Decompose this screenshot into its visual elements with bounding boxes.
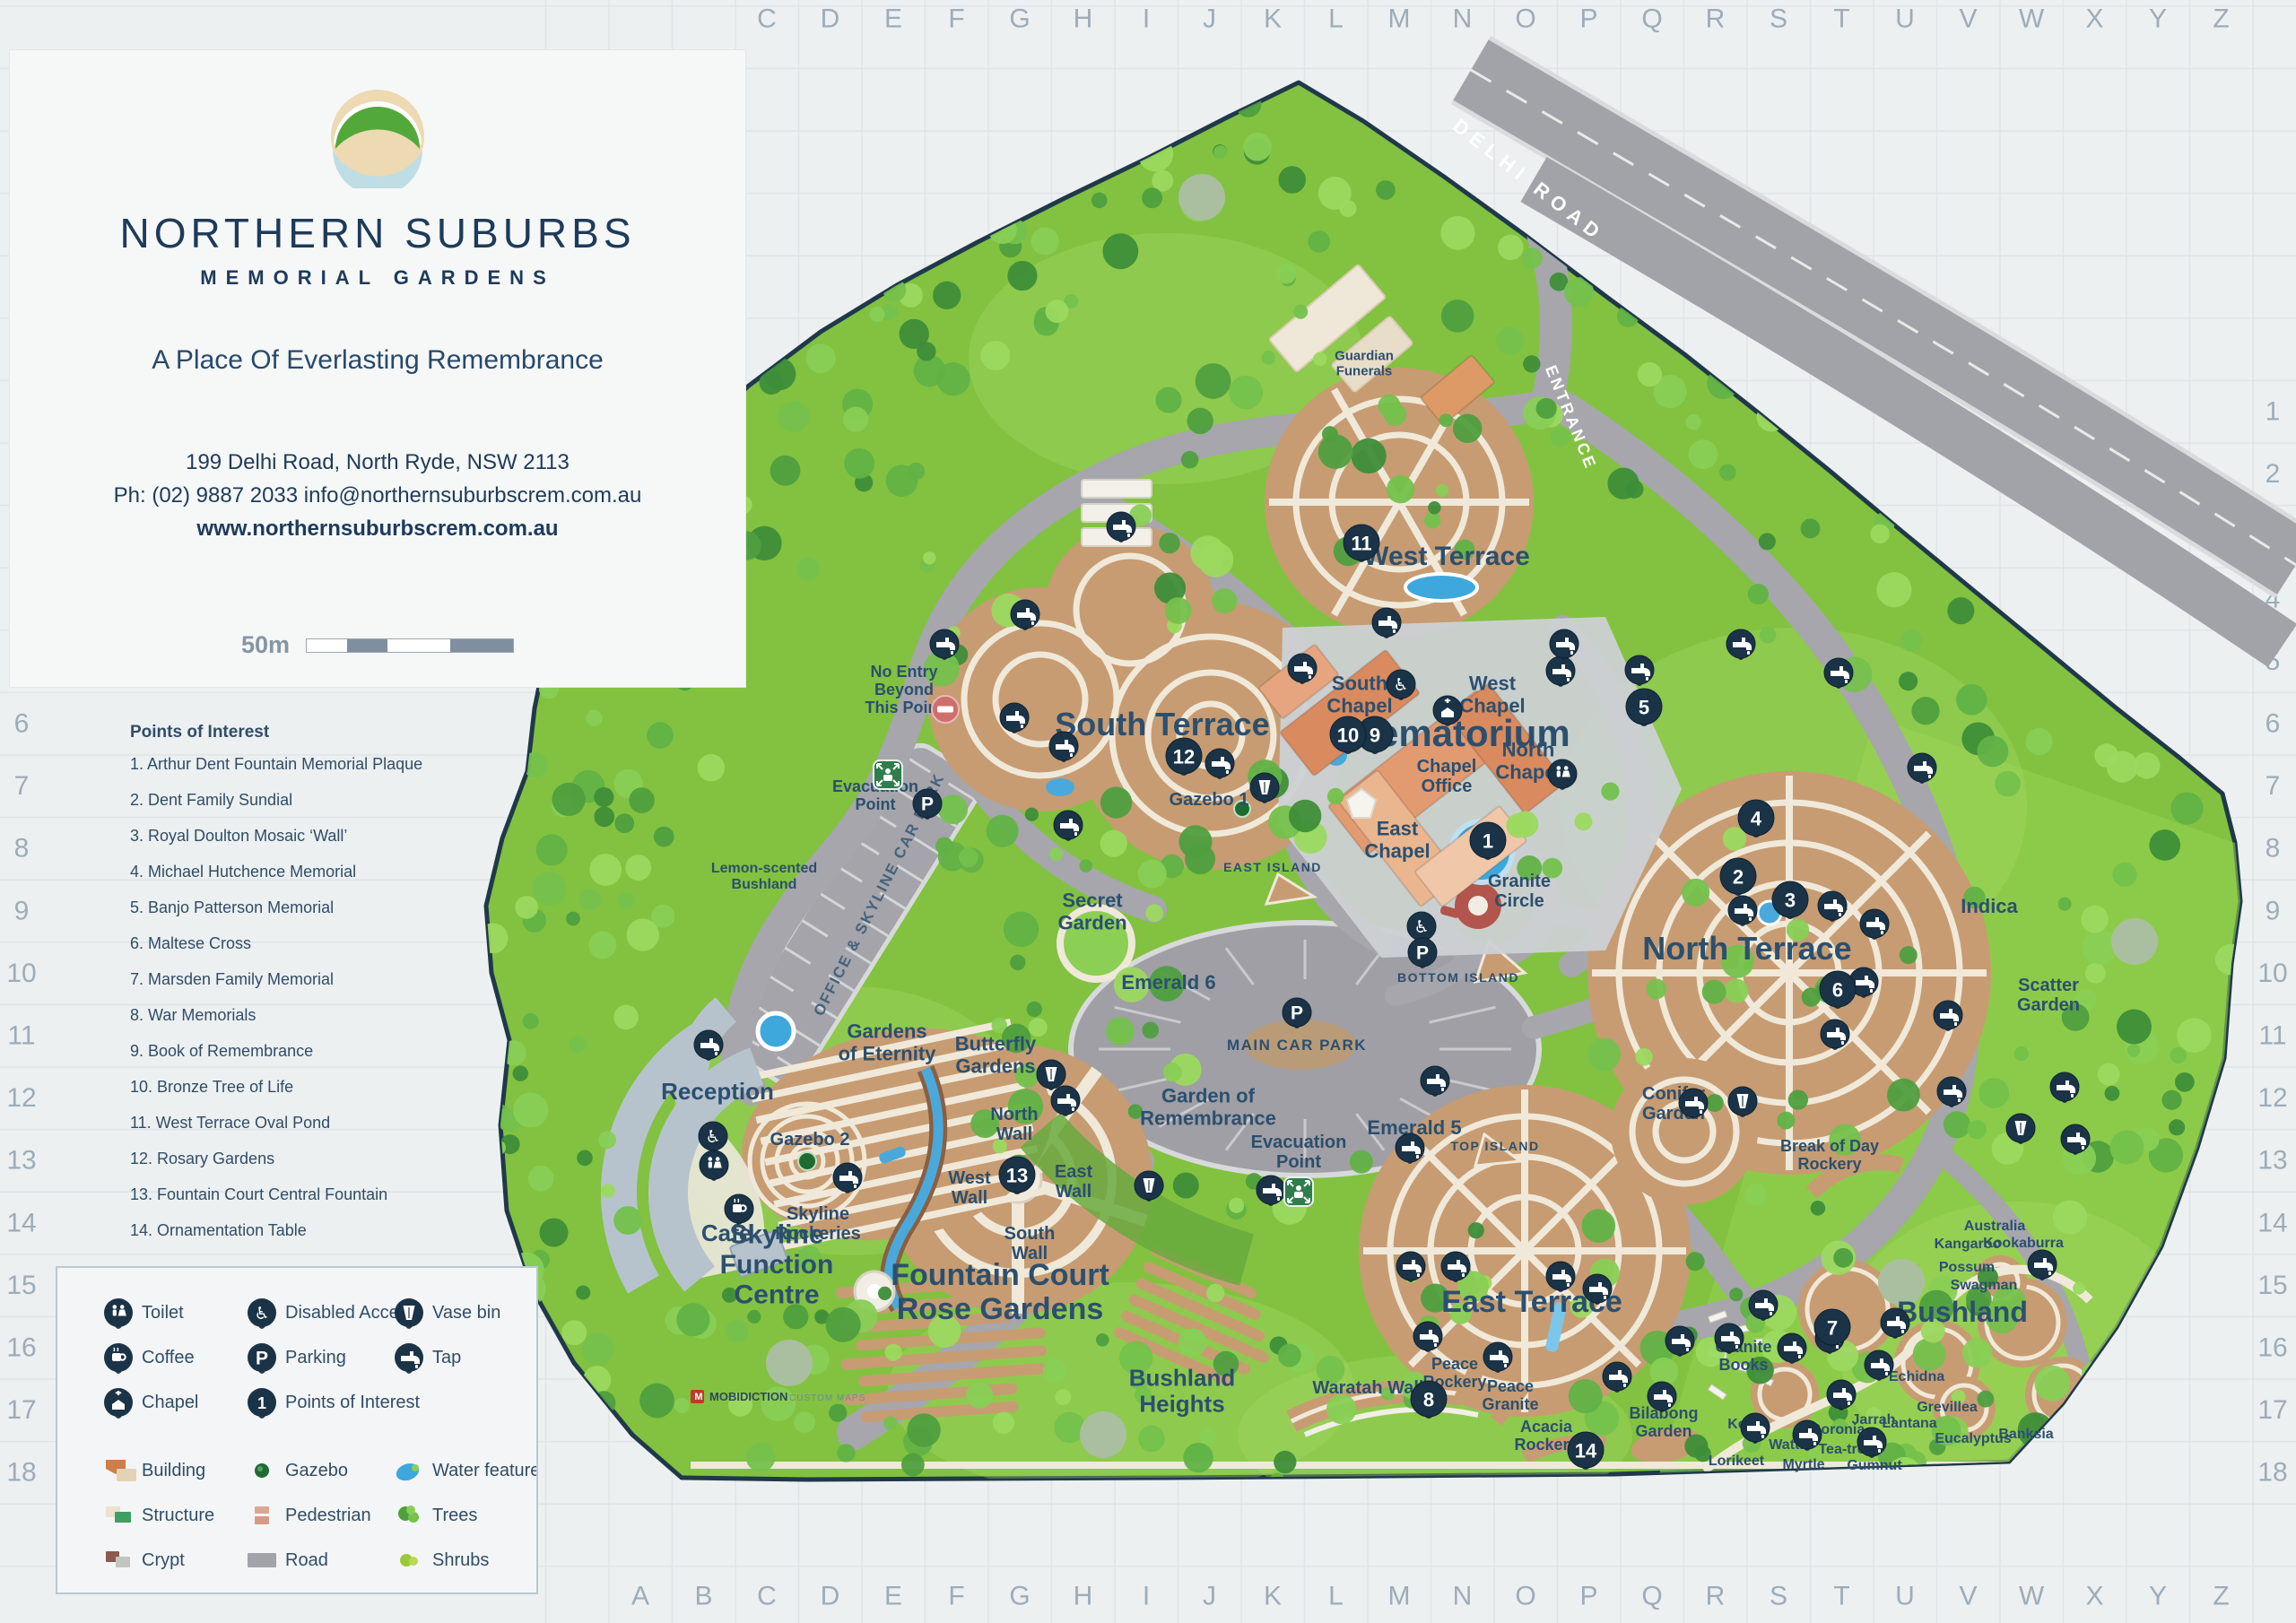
map-label-gazebo-1: Gazebo 1 (1170, 790, 1249, 810)
grid-row-left-13: 13 (6, 1146, 36, 1176)
svg-text:♿: ♿ (705, 1127, 720, 1147)
map-label-banksia: Banksia (1998, 1427, 2053, 1442)
map-label-south-wall: SouthWall (1004, 1224, 1056, 1263)
map-label-north-wall: NorthWall (990, 1105, 1038, 1144)
poi-list-item-6: 6. Maltese Cross (130, 934, 507, 953)
grid-col-bottom-H: H (1074, 1582, 1093, 1611)
map-label-west-chapel: WestChapel (1459, 673, 1525, 717)
points-of-interest-list: Points of Interest 1. Arthur Dent Founta… (130, 723, 507, 1257)
map-label-north-terrace: North Terrace (1642, 930, 1851, 967)
grid-col-top-D: D (821, 4, 840, 34)
map-label-gardens-of-eternity: Gardensof Eternity (839, 1020, 937, 1065)
map-label-east-island: EAST ISLAND (1223, 860, 1322, 874)
grid-col-bottom-A: A (631, 1582, 649, 1611)
grid-row-right-14: 14 (2257, 1208, 2287, 1237)
map-label-lantana: Lantana (1882, 1416, 1936, 1431)
legend-swatch-gazebo (255, 1463, 269, 1478)
grid-col-top-W: W (2019, 4, 2045, 34)
grid-row-right-9: 9 (2266, 896, 2281, 925)
map-label-west-wall: WestWall (948, 1168, 991, 1208)
map-label-secret-garden: SecretGarden (1057, 890, 1126, 934)
grid-col-bottom-S: S (1770, 1582, 1787, 1611)
grid-col-top-N: N (1453, 4, 1473, 34)
legend-label-shrubs: Shrubs (432, 1550, 489, 1570)
legend-swatch-road (248, 1553, 276, 1567)
grid-col-bottom-J: J (1203, 1582, 1216, 1611)
svg-text:8: 8 (1423, 1389, 1434, 1411)
svg-text:9: 9 (1370, 725, 1380, 747)
grid-row-left-18: 18 (6, 1458, 36, 1488)
svg-text:♿: ♿ (1393, 675, 1408, 695)
svg-text:1: 1 (257, 1394, 266, 1412)
legend-pin-tap (395, 1343, 423, 1374)
svg-text:12: 12 (1173, 746, 1195, 768)
svg-text:P: P (256, 1349, 268, 1369)
grid-col-bottom-I: I (1143, 1582, 1150, 1611)
svg-text:MOBIDICTION: MOBIDICTION (709, 1390, 787, 1403)
map-label-scatter-garden: ScatterGarden (2017, 976, 2080, 1015)
svg-text:3: 3 (1785, 890, 1796, 912)
poi-list-item-13: 13. Fountain Court Central Fountain (130, 1185, 507, 1204)
map-label-skyline-rockeries: SkylineRockeries (775, 1204, 861, 1244)
legend-pin-disabled-access: ♿ (248, 1298, 276, 1329)
svg-text:CUSTOM MAPS: CUSTOM MAPS (789, 1393, 865, 1403)
grid-row-right-16: 16 (2257, 1333, 2287, 1363)
grid-col-bottom-X: X (2085, 1582, 2103, 1611)
map-label-peace-granite: PeaceGranite (1482, 1377, 1538, 1413)
svg-text:P: P (1291, 1003, 1303, 1024)
legend-label-coffee: Coffee (142, 1348, 195, 1367)
svg-text:10: 10 (1337, 725, 1359, 747)
svg-text:14: 14 (1575, 1440, 1597, 1462)
grid-col-bottom-D: D (821, 1582, 840, 1611)
scale-bar (306, 638, 514, 653)
map-label-gumnut: Gumnut (1847, 1458, 1902, 1473)
grid-row-left-9: 9 (14, 896, 30, 925)
poi-list-item-9: 9. Book of Remembrance (130, 1042, 507, 1061)
grid-col-top-O: O (1515, 4, 1535, 34)
map-label-cafe: Cafe (701, 1219, 752, 1246)
grid-col-top-G: G (1009, 4, 1030, 34)
map-label-possum: Possum (1939, 1260, 1995, 1275)
map-label-indica: Indica (1961, 895, 2018, 917)
svg-text:♿: ♿ (254, 1304, 269, 1324)
grid-row-right-1: 1 (2266, 397, 2281, 427)
grid-row-right-12: 12 (2257, 1083, 2287, 1113)
map-legend: Toilet♿Disabled AccessVase binCoffeePPar… (56, 1266, 538, 1594)
map-label-echidna: Echidna (1889, 1369, 1944, 1384)
grid-row-left-15: 15 (6, 1271, 36, 1300)
svg-text:13: 13 (1006, 1165, 1028, 1187)
legend-swatch-water-feature (394, 1461, 422, 1484)
grid-col-top-X: X (2085, 4, 2103, 34)
grid-col-top-Z: Z (2213, 4, 2229, 34)
contact-block: 199 Delhi Road, North Ryde, NSW 2113 Ph:… (10, 446, 745, 545)
poi-list-item-14: 14. Ornamentation Table (130, 1221, 507, 1240)
map-label-australia: Australia (1964, 1219, 2026, 1234)
legend-label-road: Road (285, 1550, 328, 1570)
poi-list-item-11: 11. West Terrace Oval Pond (130, 1114, 507, 1133)
grid-row-right-8: 8 (2266, 834, 2281, 864)
legend-label-points-of-interest: Points of Interest (285, 1393, 421, 1412)
grid-col-bottom-Z: Z (2213, 1582, 2229, 1611)
map-label-reception: Reception (661, 1078, 774, 1105)
evacuation-point-icon (1284, 1177, 1313, 1206)
grid-col-bottom-N: N (1453, 1582, 1473, 1611)
map-label-grevillea: Grevillea (1917, 1400, 1978, 1415)
poi-list-item-12: 12. Rosary Gardens (130, 1150, 507, 1168)
poi-list-item-10: 10. Bronze Tree of Life (130, 1078, 507, 1097)
brand-tagline: A Place Of Everlasting Remembrance (10, 345, 745, 376)
grid-row-right-10: 10 (2257, 959, 2287, 988)
grid-col-top-H: H (1074, 4, 1093, 34)
grid-row-left-10: 10 (6, 959, 36, 988)
grid-col-top-U: U (1895, 4, 1915, 34)
grid-row-right-2: 2 (2266, 459, 2281, 489)
memorial-gardens-map-page: CDEFGHIJKLMNOPQRSTUVWXYZABCDEFGHIJKLMNOP… (0, 0, 2296, 1623)
map-label-top-island: TOP ISLAND (1450, 1139, 1539, 1153)
svg-text:7: 7 (1827, 1317, 1838, 1340)
legend-swatch-building (106, 1460, 136, 1481)
legend-pin-coffee (104, 1343, 133, 1374)
legend-label-structure: Structure (142, 1506, 214, 1525)
map-label-lorikeet: Lorikeet (1709, 1454, 1765, 1469)
poi-list-item-3: 3. Royal Doulton Mosaic ‘Wall’ (130, 827, 507, 846)
legend-pin-vase-bin (395, 1298, 423, 1329)
phone-email-line: Ph: (02) 9887 2033 info@northernsuburbsc… (10, 479, 745, 512)
evacuation-point-icon (874, 760, 902, 789)
legend-swatch-trees (398, 1506, 419, 1523)
grid-col-bottom-V: V (1959, 1582, 1977, 1611)
grid-col-bottom-U: U (1895, 1582, 1915, 1611)
map-label-west-terrace: West Terrace (1363, 542, 1530, 571)
grid-col-top-P: P (1579, 4, 1597, 34)
grid-col-bottom-P: P (1579, 1582, 1597, 1611)
poi-list-item-5: 5. Banjo Patterson Memorial (130, 898, 507, 917)
grid-row-right-13: 13 (2257, 1146, 2287, 1176)
grid-row-left-17: 17 (6, 1395, 36, 1425)
address-line: 199 Delhi Road, North Ryde, NSW 2113 (10, 446, 745, 479)
grid-col-top-R: R (1706, 4, 1726, 34)
poi-list-item-2: 2. Dent Family Sundial (130, 791, 507, 810)
svg-text:♿: ♿ (1413, 917, 1429, 937)
svg-text:P: P (1416, 943, 1429, 964)
grid-row-right-17: 17 (2257, 1395, 2287, 1425)
svg-text:P: P (921, 794, 934, 815)
legend-label-chapel: Chapel (142, 1393, 198, 1412)
grid-row-left-12: 12 (6, 1083, 36, 1113)
scale-label: 50m (241, 631, 290, 659)
grid-col-bottom-Q: Q (1641, 1582, 1662, 1611)
legend-label-building: Building (142, 1461, 205, 1480)
grid-row-right-11: 11 (2258, 1021, 2286, 1051)
legend-label-vase-bin: Vase bin (432, 1303, 500, 1323)
legend-label-water-feature: Water feature (432, 1461, 536, 1480)
legend-label-crypt: Crypt (142, 1550, 185, 1570)
legend-pin-chapel (104, 1388, 133, 1419)
map-label-fountain-court-rose-gardens: Fountain CourtRose Gardens (891, 1258, 1109, 1326)
grid-col-top-L: L (1328, 4, 1344, 34)
poi-list-item-7: 7. Marsden Family Memorial (130, 970, 507, 989)
grid-col-top-J: J (1203, 4, 1216, 34)
grid-col-top-C: C (757, 4, 777, 34)
legend-swatch-pedestrian (255, 1506, 269, 1524)
grid-col-bottom-Y: Y (2149, 1582, 2167, 1611)
map-label-main-car-park: MAIN CAR PARK (1227, 1037, 1367, 1054)
brand-title: NORTHERN SUBURBS (10, 209, 745, 257)
map-label-chapel-office: ChapelOffice (1417, 757, 1477, 796)
grid-row-right-6: 6 (2266, 709, 2281, 739)
brand-subtitle: MEMORIAL GARDENS (10, 266, 745, 290)
grid-row-left-6: 6 (14, 709, 30, 739)
map-label-myrtle: Myrtle (1782, 1457, 1824, 1472)
grid-col-top-E: E (884, 4, 902, 34)
grid-col-bottom-T: T (1833, 1582, 1849, 1611)
svg-text:11: 11 (1351, 533, 1371, 555)
poi-list-item-8: 8. War Memorials (130, 1006, 507, 1025)
grid-col-top-M: M (1388, 4, 1411, 34)
grid-col-bottom-E: E (884, 1582, 902, 1611)
svg-text:5: 5 (1639, 697, 1649, 719)
grid-row-right-7: 7 (2266, 771, 2281, 801)
map-label-emerald-6: Emerald 6 (1121, 971, 1215, 994)
grid-col-top-F: F (948, 4, 964, 34)
svg-text:M: M (694, 1392, 702, 1402)
legend-label-pedestrian: Pedestrian (285, 1506, 371, 1525)
legend-label-toilet: Toilet (142, 1303, 184, 1323)
grid-row-left-14: 14 (6, 1208, 36, 1237)
scale-bar-row: 50m (10, 631, 745, 659)
grid-col-bottom-R: R (1706, 1582, 1726, 1611)
grid-col-bottom-C: C (757, 1582, 777, 1611)
grid-col-bottom-M: M (1388, 1582, 1411, 1611)
map-label-kookaburra: Kookaburra (1983, 1236, 2064, 1251)
grid-col-top-T: T (1833, 4, 1849, 34)
legend-label-trees: Trees (432, 1506, 477, 1525)
grid-col-bottom-F: F (948, 1582, 964, 1611)
map-label-guardian-funerals: GuardianFunerals (1335, 349, 1394, 379)
legend-pin-parking: P (248, 1343, 276, 1374)
map-label-swagman: Swagman (1951, 1278, 2018, 1293)
map-label-south-chapel: SouthChapel (1326, 673, 1392, 717)
map-label-gazebo-2: Gazebo 2 (770, 1130, 850, 1150)
grid-col-bottom-G: G (1009, 1582, 1030, 1611)
map-label-bottom-island: BOTTOM ISLAND (1397, 970, 1519, 985)
legend-label-gazebo: Gazebo (285, 1461, 348, 1480)
map-label-butterfly-gardens: ButterflyGardens (955, 1033, 1037, 1078)
website-line: www.northernsuburbscrem.com.au (10, 512, 745, 545)
grid-row-right-15: 15 (2257, 1271, 2287, 1300)
grid-row-left-11: 11 (7, 1021, 35, 1051)
grid-col-bottom-B: B (694, 1582, 712, 1611)
grid-col-top-Y: Y (2149, 4, 2167, 34)
grid-col-top-K: K (1264, 4, 1282, 34)
legend-swatch-structure (106, 1506, 131, 1523)
map-label-bushland-heights: BushlandHeights (1129, 1364, 1235, 1417)
map-label-south-terrace: South Terrace (1055, 706, 1269, 742)
grid-row-right-18: 18 (2257, 1458, 2287, 1488)
grid-col-top-V: V (1959, 4, 1977, 34)
grid-row-left-8: 8 (14, 834, 30, 864)
poi-list-title: Points of Interest (130, 723, 507, 742)
brand-logo (310, 84, 445, 188)
svg-text:6: 6 (1832, 979, 1843, 1002)
info-panel: NORTHERN SUBURBS MEMORIAL GARDENS A Plac… (9, 49, 746, 688)
map-label-bushland: Bushland (1897, 1296, 2028, 1328)
poi-list-item-1: 1. Arthur Dent Fountain Memorial Plaque (130, 755, 507, 774)
no-entry-icon (932, 696, 959, 723)
grid-col-bottom-W: W (2019, 1582, 2045, 1611)
svg-text:1: 1 (1483, 830, 1493, 853)
legend-label-tap: Tap (432, 1348, 461, 1367)
map-label-east-wall: EastWall (1055, 1162, 1093, 1202)
map-label-granite-circle: GraniteCircle (1488, 872, 1551, 911)
legend-label-parking: Parking (285, 1348, 346, 1367)
grid-col-top-I: I (1143, 4, 1150, 34)
grid-col-bottom-O: O (1515, 1582, 1535, 1611)
grid-col-top-S: S (1770, 4, 1787, 34)
grid-col-top-Q: Q (1641, 4, 1662, 34)
legend-pin-toilet (104, 1298, 133, 1329)
grid-row-left-7: 7 (14, 771, 30, 801)
svg-text:4: 4 (1751, 808, 1762, 830)
legend-swatch-crypt (106, 1551, 130, 1567)
grid-col-bottom-K: K (1264, 1582, 1282, 1611)
grid-col-bottom-L: L (1328, 1582, 1344, 1611)
grid-row-left-16: 16 (6, 1333, 36, 1363)
poi-list-item-4: 4. Michael Hutchence Memorial (130, 863, 507, 881)
legend-swatch-shrubs (400, 1554, 418, 1567)
svg-text:2: 2 (1733, 866, 1744, 889)
legend-pin-points-of-interest: 1 (248, 1388, 276, 1419)
